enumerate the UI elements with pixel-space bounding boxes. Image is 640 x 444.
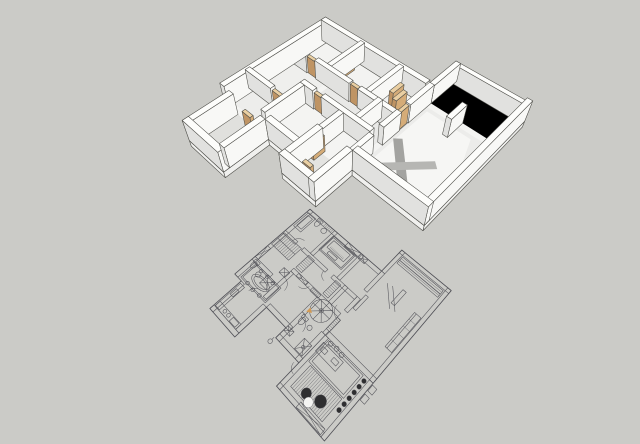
scene-canvas <box>0 0 640 444</box>
floorplan-viewport <box>0 0 640 444</box>
